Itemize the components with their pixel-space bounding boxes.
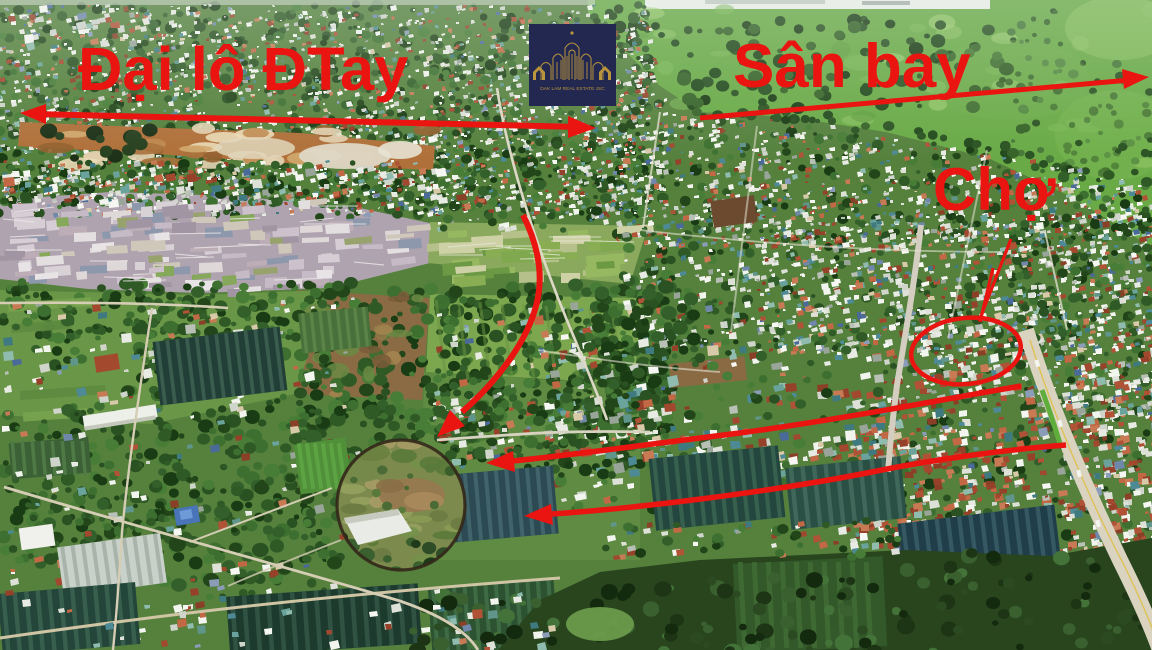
svg-text:Đại lô ĐTay: Đại lô ĐTay <box>78 35 408 104</box>
svg-text:DAK LAM REAL ESTATE JSC: DAK LAM REAL ESTATE JSC <box>540 86 605 92</box>
svg-text:Sân bay: Sân bay <box>733 32 971 101</box>
svg-text:Chợ: Chợ <box>933 156 1056 223</box>
